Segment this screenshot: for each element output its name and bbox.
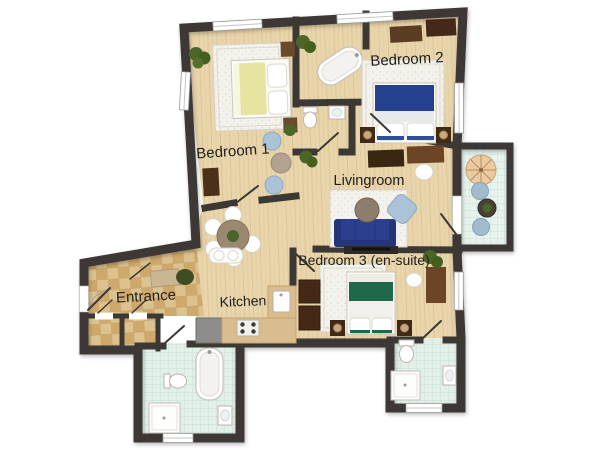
balcony-table-plant bbox=[483, 204, 492, 213]
bedroom1-small-plant bbox=[284, 124, 296, 136]
hall-console bbox=[150, 269, 179, 287]
bedroom3-desk bbox=[426, 267, 446, 303]
bedroom1-pillow bbox=[268, 91, 288, 115]
living-desk bbox=[368, 149, 405, 167]
wc-toilet bbox=[303, 107, 317, 128]
bedroom3-bed-duvet bbox=[349, 282, 393, 301]
bedroom1-pillow bbox=[267, 64, 287, 88]
bedroom2-nightstand bbox=[360, 127, 375, 143]
umbrella bbox=[466, 155, 496, 185]
bedroom3-wardrobe bbox=[299, 280, 320, 303]
left-shower bbox=[149, 403, 180, 433]
sofa bbox=[334, 219, 396, 247]
kitchen-sink bbox=[273, 291, 290, 312]
floor-plan-canvas: Bedroom 1 Bedroom 2 Livingroom Bedroom 3… bbox=[0, 0, 600, 450]
stove bbox=[237, 320, 259, 336]
bedroom1-nightstand bbox=[280, 41, 295, 56]
kitchen-table bbox=[209, 248, 243, 263]
bedroom1-chair bbox=[265, 176, 283, 194]
bedroom2-wardrobe bbox=[426, 18, 457, 37]
ensuite-shower bbox=[391, 371, 420, 400]
bedroom3-desk-chair bbox=[406, 273, 422, 287]
room-label-bedroom3: Bedroom 3 (en-suite) bbox=[298, 252, 430, 268]
living-sideboard bbox=[407, 145, 445, 163]
floor-plan: Bedroom 1 Bedroom 2 Livingroom Bedroom 3… bbox=[0, 0, 600, 450]
coffee-table bbox=[355, 198, 379, 222]
stool bbox=[214, 251, 224, 261]
balcony-door-gap bbox=[453, 196, 462, 234]
wc-sink bbox=[329, 106, 345, 119]
bathtub-faucet bbox=[208, 350, 212, 354]
bedroom3-nightstand bbox=[397, 320, 412, 336]
room-label-entrance: Entrance bbox=[116, 286, 177, 306]
entrance-closet1-floor bbox=[87, 318, 120, 348]
lamp bbox=[401, 324, 409, 332]
bedroom3-wardrobe bbox=[299, 306, 320, 330]
bedroom2-nightstand bbox=[436, 127, 451, 143]
dining-table-plant bbox=[227, 230, 239, 242]
bathtub-left bbox=[196, 348, 223, 400]
ensuite-sink bbox=[443, 366, 456, 385]
left-toilet bbox=[164, 374, 187, 388]
hall-plant bbox=[176, 269, 194, 285]
wall-wc-top bbox=[296, 102, 368, 103]
wall-bedroom1-bottom-right bbox=[262, 196, 296, 200]
balcony-chair bbox=[473, 219, 490, 236]
left-sink bbox=[218, 406, 232, 425]
bedroom3-nightstand bbox=[330, 320, 345, 336]
stool bbox=[228, 251, 238, 261]
room-label-livingroom: Livingroom bbox=[334, 173, 405, 189]
bedroom2-bed-duvet bbox=[375, 85, 434, 111]
balcony-chair bbox=[472, 183, 489, 200]
kitchen-appliance bbox=[196, 318, 222, 343]
tv bbox=[352, 248, 390, 251]
front-door-gap bbox=[80, 286, 89, 312]
room-label-kitchen: Kitchen bbox=[219, 292, 266, 310]
lamp bbox=[364, 131, 372, 139]
ensuite-toilet bbox=[399, 340, 414, 363]
bedroom1-side-table bbox=[271, 153, 291, 173]
bedroom2-dresser bbox=[390, 25, 423, 43]
lamp bbox=[440, 131, 448, 139]
bathleft-door-leaf bbox=[165, 326, 184, 343]
lamp bbox=[334, 324, 342, 332]
bedroom1-dresser bbox=[202, 168, 219, 197]
living-desk-chair bbox=[415, 164, 433, 180]
